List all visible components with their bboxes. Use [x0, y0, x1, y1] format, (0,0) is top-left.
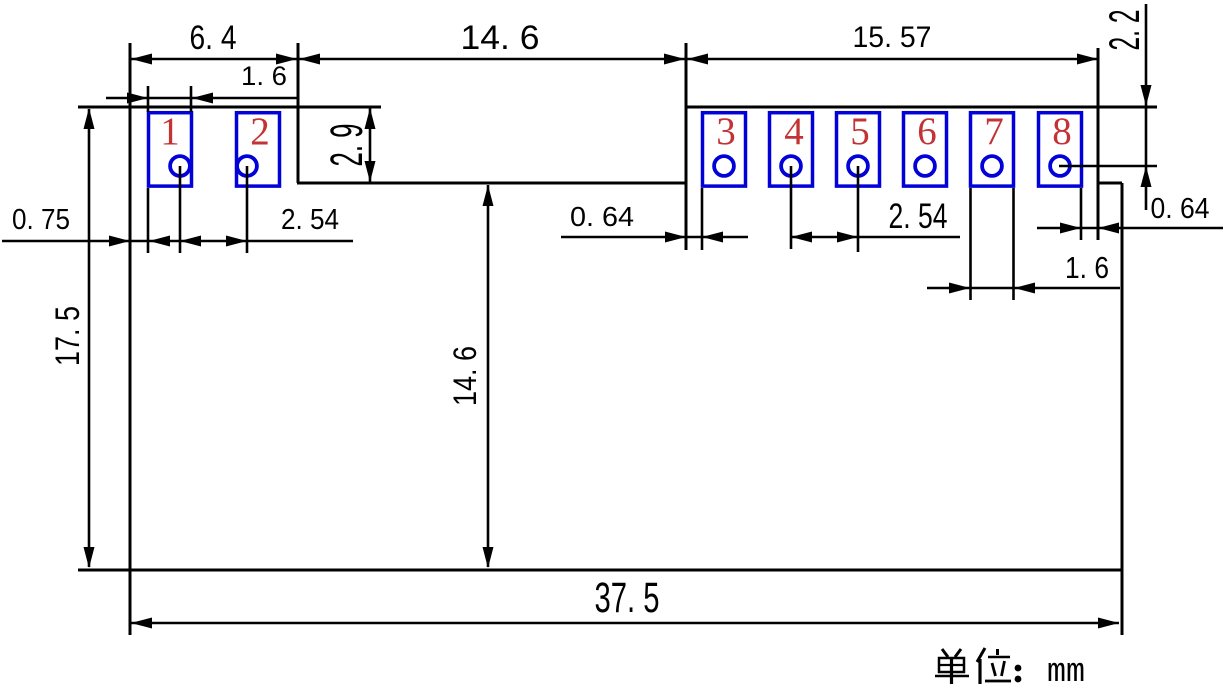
svg-text:2. 9: 2. 9: [321, 124, 372, 167]
svg-text:17. 5: 17. 5: [49, 306, 87, 366]
svg-text:6: 6: [917, 110, 937, 153]
svg-text:1. 6: 1. 6: [241, 61, 287, 91]
svg-text:37. 5: 37. 5: [595, 574, 660, 622]
svg-text:5: 5: [850, 110, 870, 153]
svg-text:8: 8: [1052, 110, 1072, 153]
svg-text:14. 6: 14. 6: [447, 346, 483, 406]
svg-text:3: 3: [716, 110, 736, 153]
svg-text:1: 1: [160, 110, 180, 153]
svg-text:2. 54: 2. 54: [889, 197, 948, 236]
svg-text:0. 64: 0. 64: [570, 201, 634, 232]
svg-text:14. 6: 14. 6: [461, 19, 540, 57]
svg-text:0. 64: 0. 64: [1151, 193, 1210, 225]
svg-text:2: 2: [250, 110, 270, 153]
svg-text:2. 54: 2. 54: [281, 204, 339, 236]
svg-text:15. 57: 15. 57: [853, 21, 932, 54]
svg-text:7: 7: [984, 110, 1004, 153]
svg-text:1. 6: 1. 6: [1065, 250, 1109, 285]
svg-text:0. 75: 0. 75: [12, 204, 70, 236]
svg-text:2. 2: 2. 2: [1101, 10, 1149, 51]
svg-text:6. 4: 6. 4: [190, 19, 237, 57]
svg-text:4: 4: [784, 110, 804, 153]
svg-text:mm: mm: [1047, 654, 1085, 692]
